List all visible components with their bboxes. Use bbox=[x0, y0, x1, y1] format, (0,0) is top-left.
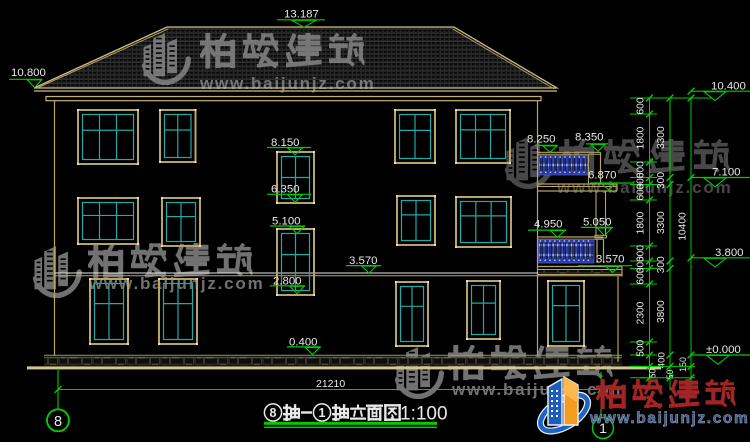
svg-text:400: 400 bbox=[656, 352, 667, 368]
svg-text:3300: 3300 bbox=[656, 126, 667, 149]
svg-text:50: 50 bbox=[648, 369, 658, 379]
svg-text:8: 8 bbox=[54, 414, 62, 430]
svg-text:1: 1 bbox=[319, 406, 326, 420]
svg-text:1800: 1800 bbox=[636, 211, 647, 234]
svg-text:300: 300 bbox=[656, 256, 667, 273]
svg-text:500: 500 bbox=[636, 339, 647, 356]
svg-text:4.950: 4.950 bbox=[534, 219, 563, 231]
svg-text:7.100: 7.100 bbox=[712, 167, 741, 179]
svg-text:1:100: 1:100 bbox=[400, 404, 448, 425]
svg-text:1800: 1800 bbox=[636, 126, 647, 149]
svg-text:www.baijunjz.com: www.baijunjz.com bbox=[589, 410, 749, 427]
svg-text:www.baijunjz.com: www.baijunjz.com bbox=[199, 74, 376, 93]
svg-text:21210: 21210 bbox=[316, 378, 345, 390]
svg-text:8: 8 bbox=[270, 406, 277, 420]
svg-text:8.250: 8.250 bbox=[527, 134, 556, 146]
svg-text:6.870: 6.870 bbox=[588, 170, 617, 182]
svg-text:10.800: 10.800 bbox=[11, 67, 46, 79]
svg-text:13.187: 13.187 bbox=[284, 9, 319, 21]
svg-text:8.350: 8.350 bbox=[575, 132, 604, 144]
svg-text:10400: 10400 bbox=[678, 212, 689, 241]
svg-text:150: 150 bbox=[678, 357, 688, 372]
svg-text:600: 600 bbox=[636, 267, 647, 284]
svg-text:300: 300 bbox=[656, 172, 667, 189]
svg-text:600: 600 bbox=[636, 183, 647, 200]
svg-text:600: 600 bbox=[636, 97, 647, 114]
svg-text:3800: 3800 bbox=[656, 300, 667, 323]
svg-text:3300: 3300 bbox=[656, 211, 667, 234]
svg-text:5.050: 5.050 bbox=[583, 216, 612, 228]
svg-text:2300: 2300 bbox=[636, 301, 647, 324]
svg-text:3.570: 3.570 bbox=[596, 253, 625, 265]
